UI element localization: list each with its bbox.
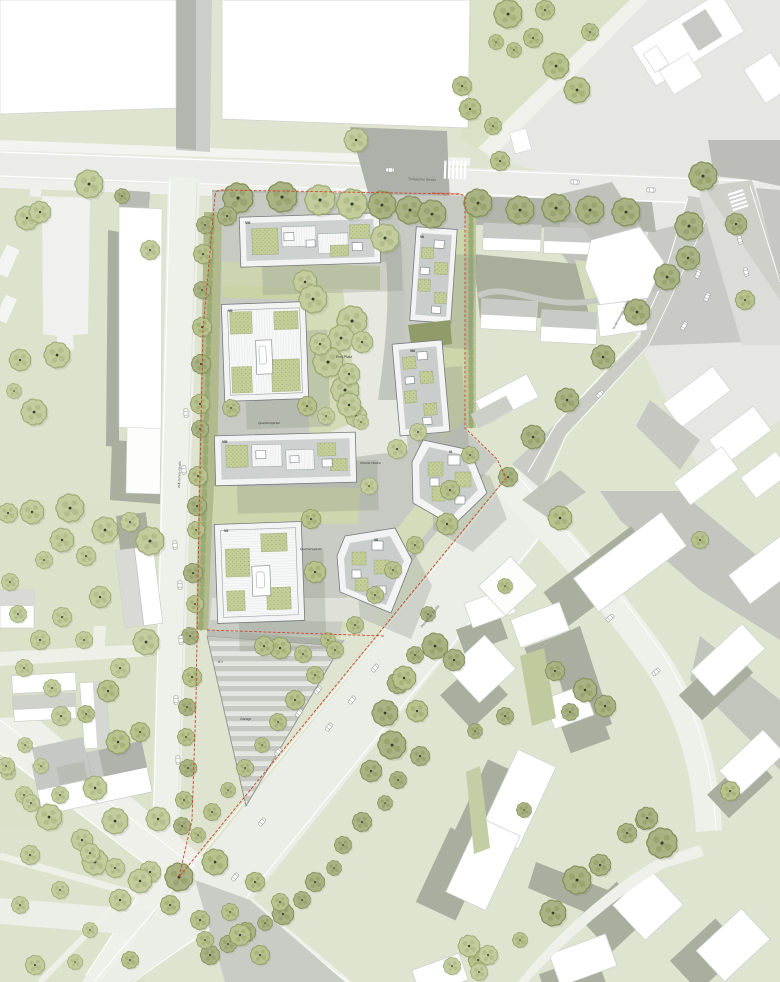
svg-text:VIII: VIII bbox=[245, 221, 250, 225]
svg-text:VIII: VIII bbox=[410, 349, 415, 353]
svg-text:Quartiersgarten: Quartiersgarten bbox=[258, 421, 280, 425]
svg-text:VII: VII bbox=[224, 529, 228, 533]
svg-text:VII: VII bbox=[420, 235, 424, 239]
svg-text:Garage: Garage bbox=[240, 717, 251, 721]
svg-text:VII: VII bbox=[228, 309, 232, 313]
svg-text:B+I: B+I bbox=[218, 660, 223, 664]
svg-text:VI: VI bbox=[449, 450, 452, 454]
svg-text:VIII: VIII bbox=[222, 440, 227, 444]
svg-text:Emi Platz: Emi Platz bbox=[336, 355, 352, 359]
svg-text:Urbane Nische: Urbane Nische bbox=[360, 461, 381, 465]
svg-text:Quartiersgarten: Quartiersgarten bbox=[300, 547, 322, 551]
svg-text:VII: VII bbox=[374, 538, 378, 542]
